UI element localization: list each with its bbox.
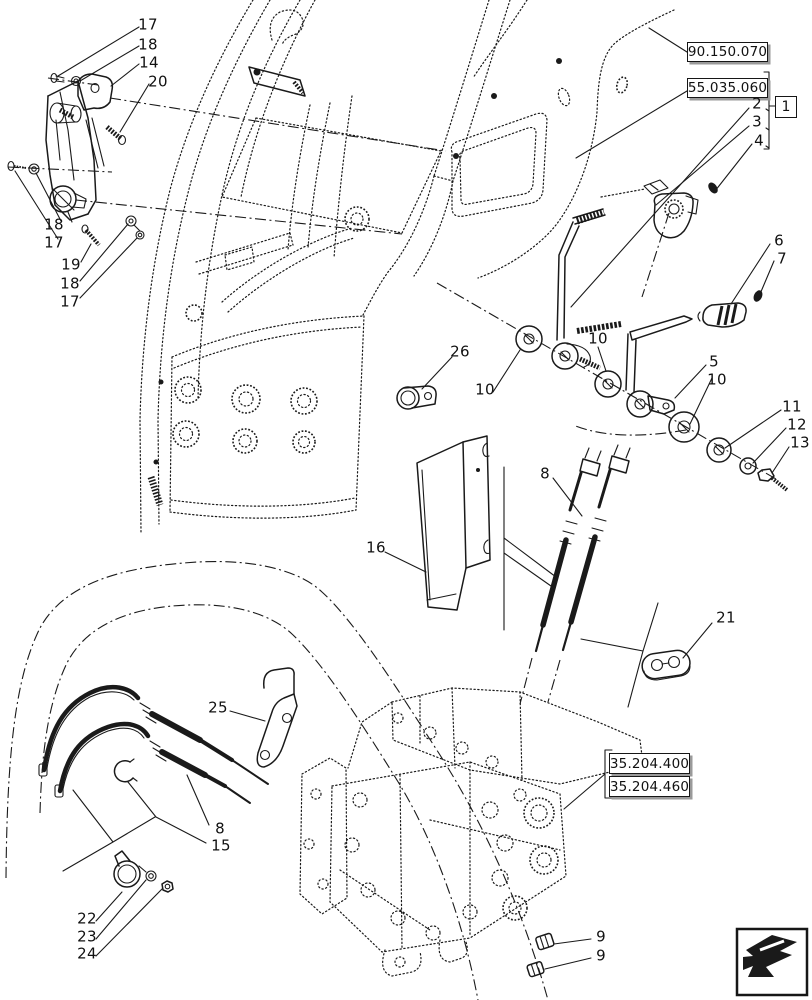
parts-diagram-page: 90.150.070 55.035.060 35.204.400 35.204.… (0, 0, 812, 1000)
ref-label: 35.204.460 (610, 779, 689, 795)
callout-9: 9 (596, 930, 606, 945)
callout-13: 13 (790, 436, 810, 451)
callout-23: 23 (77, 930, 97, 945)
plugs-9 (527, 933, 555, 977)
callout-8: 8 (540, 467, 550, 482)
bolt-17-left (8, 162, 14, 171)
callout-24: 24 (77, 947, 97, 962)
callout-10: 10 (707, 373, 727, 388)
lever-plate-25 (257, 668, 297, 767)
support-bracket-16 (417, 436, 490, 610)
callout-18: 18 (138, 38, 158, 53)
grip-3 (654, 193, 698, 238)
lever-assembly (437, 180, 787, 490)
callout-9: 9 (596, 949, 606, 964)
callout-6: 6 (774, 234, 784, 249)
callout-12: 12 (787, 418, 807, 433)
callout-14: 14 (139, 56, 159, 71)
cable-end-connector (601, 180, 668, 197)
ref-box-90-150-070[interactable]: 90.150.070 (687, 42, 768, 62)
callout-19: 19 (61, 258, 81, 273)
callout-11: 11 (782, 400, 802, 415)
lever-knob-6 (698, 303, 746, 327)
callout-26: 26 (450, 345, 470, 360)
diagram-art (0, 0, 812, 1000)
callout-7: 7 (777, 252, 787, 267)
ref-label: 35.204.400 (610, 756, 689, 772)
callout-21: 21 (716, 611, 736, 626)
callout-17: 17 (60, 295, 80, 310)
callout-5: 5 (709, 355, 719, 370)
callout-20: 20 (148, 75, 168, 90)
callout-25: 25 (208, 701, 228, 716)
callout-22: 22 (77, 912, 97, 927)
screw-19 (86, 230, 99, 245)
group-box-label: 1 (782, 99, 791, 115)
leader-lines (15, 27, 789, 969)
grommet-21 (641, 649, 692, 680)
ref-box-35-204-400[interactable]: 35.204.400 (609, 753, 690, 774)
callout-10: 10 (475, 383, 495, 398)
circlip-15 (114, 759, 137, 782)
clamp-22-hardware (114, 851, 173, 892)
clamp-26 (397, 386, 436, 409)
projection-lines (8, 78, 446, 234)
callout-8: 8 (215, 822, 225, 837)
group-box-1[interactable]: 1 (775, 96, 797, 118)
washer-18-left (29, 164, 39, 174)
ref-box-35-204-460[interactable]: 35.204.460 (609, 776, 690, 797)
callout-10: 10 (588, 332, 608, 347)
callout-17: 17 (138, 18, 158, 33)
control-cables-loop (39, 687, 268, 871)
panel-holes (173, 377, 317, 453)
callout-15: 15 (211, 839, 231, 854)
callout-2: 2 (752, 97, 762, 112)
cab-frame (140, 0, 674, 532)
callout-17: 17 (44, 236, 64, 251)
callout-3: 3 (752, 115, 762, 130)
callout-16: 16 (366, 541, 386, 556)
mounting-bracket-assembly (8, 74, 144, 246)
control-cables-upper (504, 445, 658, 707)
remote-control-valve (300, 688, 643, 976)
prev-page-arrow-icon[interactable] (737, 929, 807, 995)
ref-label: 90.150.070 (688, 44, 767, 60)
callout-18: 18 (44, 218, 64, 233)
callout-18: 18 (60, 277, 80, 292)
screw-7 (752, 289, 764, 303)
callout-4: 4 (754, 134, 764, 149)
